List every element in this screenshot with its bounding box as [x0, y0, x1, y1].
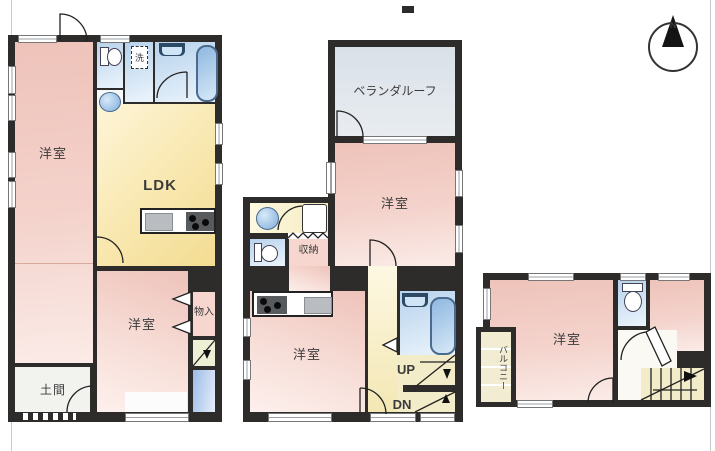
room-label: LDK: [135, 178, 185, 195]
window: [363, 136, 427, 144]
window: [243, 318, 251, 337]
hallway-2f: [368, 266, 397, 412]
sink-icon: [99, 92, 121, 112]
window: [8, 66, 16, 94]
room-label: 物入: [192, 307, 216, 318]
entrance-hatch: [18, 413, 76, 420]
window: [528, 273, 574, 281]
window: [8, 181, 16, 208]
window: [455, 170, 463, 197]
stair-landing-wall: [403, 385, 455, 392]
stove-icon: [257, 296, 287, 314]
toilet-icon: [624, 291, 642, 312]
window: [370, 413, 416, 422]
stairs-down-label: DN: [388, 398, 416, 412]
bay-window: [326, 162, 336, 194]
window: [620, 273, 646, 281]
door-leaf: [302, 204, 327, 233]
window: [455, 225, 463, 253]
floorplan-canvas: 洋室 土間 洗 LDK 洋室 物入 ベランダルーフ: [0, 0, 715, 451]
kitchen-counter: [252, 291, 333, 317]
room-label: 洋室: [282, 348, 332, 362]
window: [658, 273, 690, 281]
stairs-up-label: UP: [392, 363, 420, 377]
hallway-3f: [618, 330, 677, 370]
window: [215, 163, 223, 185]
window: [243, 360, 251, 380]
kitchen-sink-icon: [145, 213, 173, 231]
bath-sink-icon: [405, 297, 425, 306]
bath-counter: [159, 43, 185, 56]
window: [517, 400, 553, 408]
window: [100, 35, 130, 43]
window: [8, 152, 16, 178]
entry-tile-area: [193, 370, 215, 412]
room-1f-yoshitsu-middle: [97, 271, 188, 412]
hallway-3f: [618, 370, 641, 400]
room-label: 洋室: [117, 318, 167, 332]
sink-icon: [256, 207, 279, 230]
stove-icon: [186, 212, 214, 231]
room-1f-yoshitsu-upper: [15, 42, 93, 363]
kitchen-counter: [140, 208, 216, 234]
room-label: 収納: [289, 245, 328, 256]
bathtub-icon: [430, 297, 456, 355]
step-down-area: [193, 340, 215, 366]
bath-sink-icon: [162, 47, 182, 55]
compass-north-label: N: [666, 21, 680, 31]
floor-step: [125, 392, 187, 412]
room-label: 土間: [30, 384, 76, 397]
room-label: ベランダルーフ: [340, 85, 450, 98]
window: [420, 413, 455, 422]
balcony-label: バルコニー: [485, 334, 507, 400]
top-marker: [402, 6, 414, 13]
window: [8, 95, 16, 121]
room-divider-line: [15, 263, 93, 264]
room-label: 洋室: [370, 197, 420, 211]
room-label: 洋室: [542, 333, 592, 347]
bathtub-icon: [196, 45, 218, 102]
toilet-icon: [261, 245, 278, 262]
shunou-access-gap: [289, 266, 330, 293]
window: [268, 413, 332, 422]
window: [483, 288, 491, 320]
window: [215, 123, 223, 145]
window: [125, 413, 189, 422]
laundry-label: 洗: [135, 51, 144, 64]
staircase-3f: [641, 368, 704, 400]
accordion-door-bg: [288, 233, 328, 239]
window: [18, 35, 57, 43]
bath-counter: [402, 293, 428, 307]
toilet-icon: [107, 48, 122, 66]
kitchen-sink-icon: [304, 297, 332, 314]
room-label: 洋室: [28, 147, 78, 161]
